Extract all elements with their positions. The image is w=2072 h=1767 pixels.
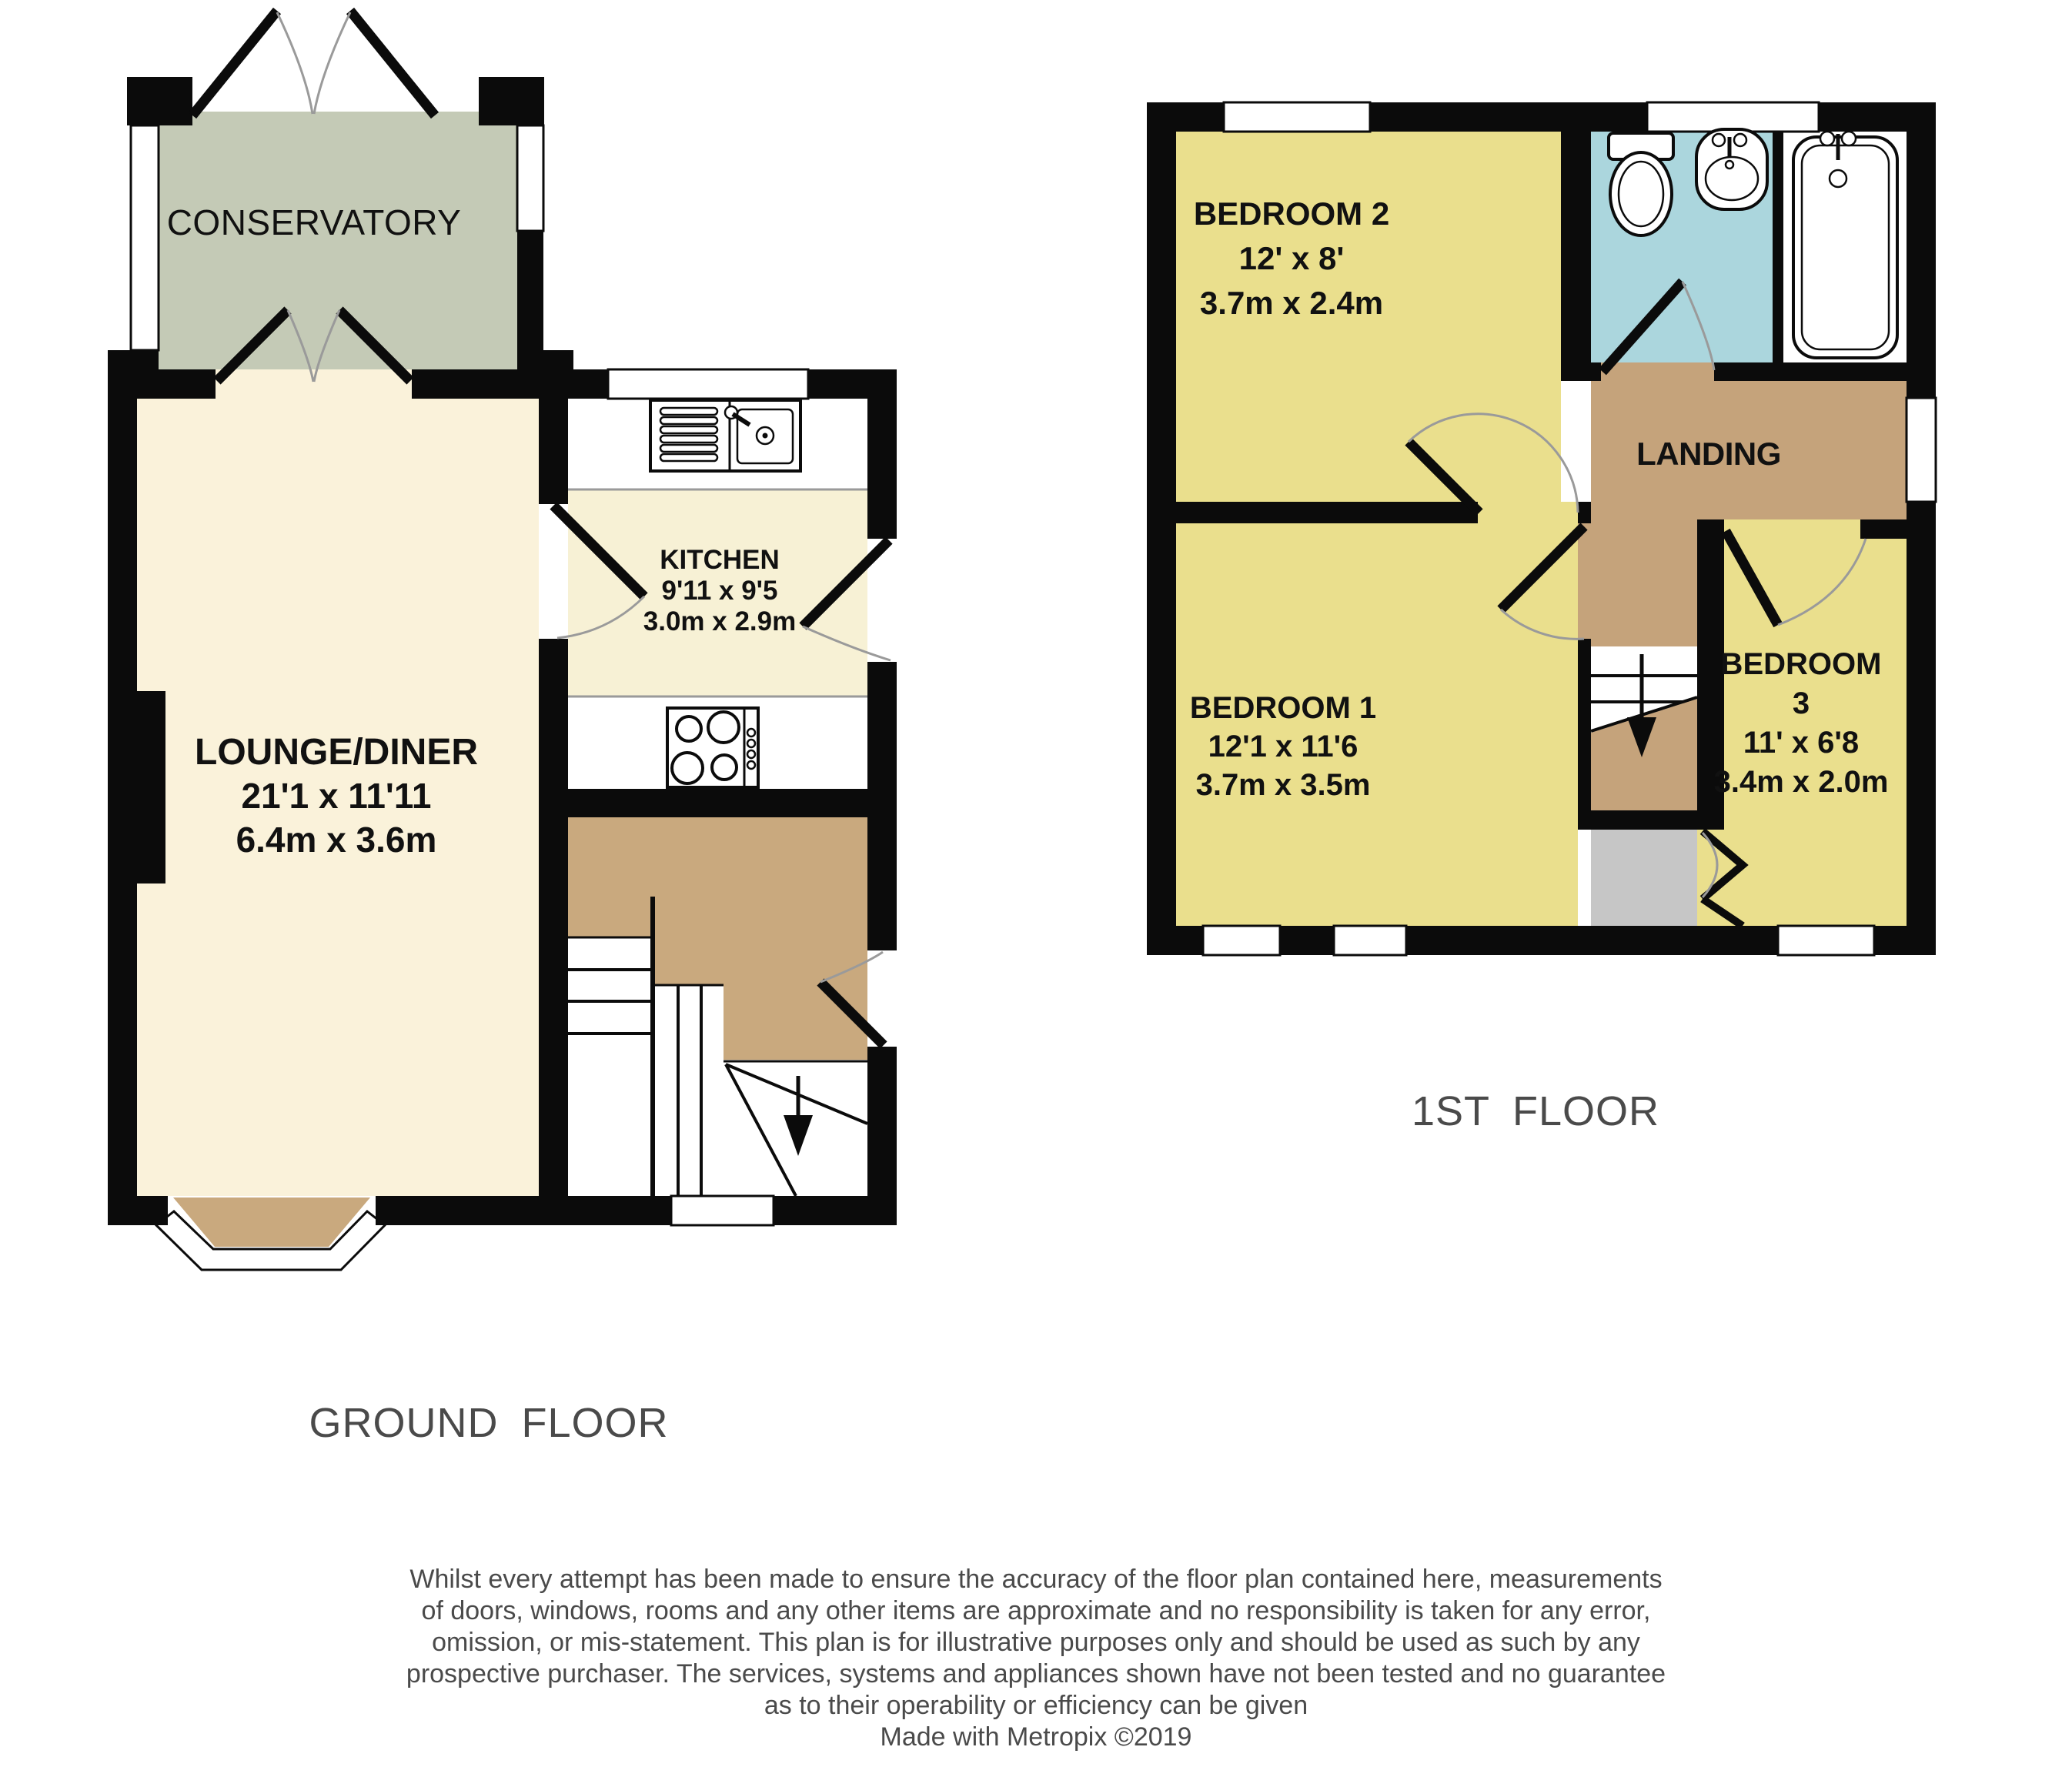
bedroom3-label: BEDROOM 3 11' x 6'8 3.4m x 2.0m xyxy=(1714,645,1889,802)
ground-floor-label: GROUND FLOOR xyxy=(309,1399,668,1447)
hob-knob xyxy=(747,740,755,747)
hob-burner xyxy=(708,712,739,743)
drainer-bar xyxy=(660,454,717,461)
wall-bathroom-landing xyxy=(1714,362,1909,381)
conservatory-door-opening xyxy=(216,369,412,399)
disclaimer-line: prospective purchaser. The services, sys… xyxy=(406,1658,1666,1690)
basin-tap-icon xyxy=(1734,134,1746,146)
wall-landing-bed3 xyxy=(1860,519,1907,539)
floorplan-page: CONSERVATORY LOUNGE/DINER 21'1 x 11'11 6… xyxy=(0,0,2072,1767)
drainer-bar xyxy=(660,426,717,433)
lounge-metric: 6.4m x 3.6m xyxy=(195,818,478,862)
conservatory-label: CONSERVATORY xyxy=(167,202,462,243)
floorplan-drawing xyxy=(0,0,2072,1767)
drainer-bar xyxy=(660,417,717,424)
wall-bottom xyxy=(1874,926,1936,955)
bedroom2-metric: 3.7m x 2.4m xyxy=(1194,281,1389,326)
bathroom-door-opening xyxy=(1601,362,1714,381)
wall-stub xyxy=(1578,502,1591,523)
ground-floor-plan xyxy=(108,11,897,1270)
landing-window xyxy=(1907,398,1936,502)
wall-bed2-bathroom xyxy=(1561,132,1591,381)
hob-burner xyxy=(712,755,737,780)
conservatory-window-right xyxy=(517,125,543,231)
cupboard-floor xyxy=(1591,830,1697,926)
disclaimer-line: omission, or mis-statement. This plan is… xyxy=(406,1627,1666,1658)
bedroom1-metric: 3.7m x 3.5m xyxy=(1190,766,1376,804)
bedroom1-imperial: 12'1 x 11'6 xyxy=(1190,727,1376,766)
basin-tap-icon xyxy=(1713,134,1725,146)
lounge-name: LOUNGE/DINER xyxy=(195,730,478,774)
conservatory-corner xyxy=(127,77,192,125)
bath-drain xyxy=(1830,170,1846,187)
chimney-breast xyxy=(137,691,165,883)
bedroom1-window xyxy=(1334,926,1406,955)
hob-burner xyxy=(672,753,703,783)
first-floor-label: 1ST FLOOR xyxy=(1412,1087,1659,1135)
stairs-flight-middle xyxy=(655,985,724,1196)
bath-tap-icon xyxy=(1842,132,1856,145)
wall-bottom xyxy=(774,1196,897,1225)
wall-bottom xyxy=(1406,926,1778,955)
sink-drain-dot xyxy=(763,433,768,439)
hob-knob xyxy=(747,729,755,737)
door-swing-arc xyxy=(277,12,312,114)
basin-drain xyxy=(1726,161,1733,169)
metropix-credit: Made with Metropix ©2019 xyxy=(406,1722,1666,1753)
hob-burner xyxy=(677,716,701,741)
drainer-bar xyxy=(660,408,717,415)
bathroom-window xyxy=(1647,102,1819,132)
bedroom2-window xyxy=(1224,102,1370,132)
bath-tap-icon xyxy=(1820,132,1834,145)
bedroom3-window xyxy=(1778,926,1874,955)
french-door-leaf xyxy=(350,11,435,115)
conservatory-corner xyxy=(479,77,544,125)
wall-lounge-hall xyxy=(539,639,568,1225)
wall-bottom xyxy=(1280,926,1334,955)
wall-left xyxy=(1147,102,1176,955)
bedroom1-name: BEDROOM 1 xyxy=(1190,689,1376,727)
wall-bathroom-landing xyxy=(1591,362,1601,381)
conservatory-window-left xyxy=(131,125,159,350)
hob-knob xyxy=(747,761,755,769)
conservatory-junction xyxy=(108,350,159,399)
wall-top xyxy=(1370,102,1647,132)
bedroom2-label: BEDROOM 2 12' x 8' 3.7m x 2.4m xyxy=(1194,192,1389,326)
lounge-label: LOUNGE/DINER 21'1 x 11'11 6.4m x 3.6m xyxy=(195,730,478,862)
bath-partition xyxy=(1773,132,1783,362)
bedroom1-label: BEDROOM 1 12'1 x 11'6 3.7m x 3.5m xyxy=(1190,689,1376,804)
landing-label: LANDING xyxy=(1636,436,1781,473)
bedroom1-door-opening xyxy=(1578,523,1591,639)
disclaimer-text: Whilst every attempt has been made to en… xyxy=(406,1564,1666,1753)
bathtub xyxy=(1793,137,1897,358)
bedroom3-name: BEDROOM xyxy=(1714,645,1889,684)
bedroom2-imperial: 12' x 8' xyxy=(1194,236,1389,281)
wall-bottom xyxy=(1147,926,1203,955)
wall-bottom xyxy=(108,1196,168,1225)
kitchen-name: KITCHEN xyxy=(643,545,796,576)
hob-knob xyxy=(747,750,755,758)
kitchen-imperial: 9'11 x 9'5 xyxy=(643,576,796,606)
door-swing-arc xyxy=(314,12,350,114)
stairs-flight-left xyxy=(568,937,650,1196)
kitchen-window xyxy=(608,369,808,399)
bedroom2-door-opening xyxy=(1478,502,1578,523)
lounge-imperial: 21'1 x 11'11 xyxy=(195,774,478,818)
bedroom3-door-opening xyxy=(1724,519,1860,539)
wall-right xyxy=(1907,102,1936,955)
bedroom3-number: 3 xyxy=(1714,684,1889,723)
drainer-bar xyxy=(660,436,717,443)
landing-floor-column xyxy=(1591,519,1697,646)
wall-bottom xyxy=(376,1196,671,1225)
disclaimer-line: as to their operability or efficiency ca… xyxy=(406,1690,1666,1722)
wall-bed1-bed2 xyxy=(1147,502,1478,523)
bedroom3-imperial: 11' x 6'8 xyxy=(1714,723,1889,763)
stair-divider xyxy=(650,897,655,1196)
wall xyxy=(412,369,608,399)
kitchen-metric: 3.0m x 2.9m xyxy=(643,606,796,637)
wall-kitchen-hall xyxy=(539,789,897,817)
wall-right xyxy=(867,369,897,539)
drainer-bar xyxy=(660,445,717,452)
conservatory-wall-right xyxy=(517,231,543,369)
bedroom2-name: BEDROOM 2 xyxy=(1194,192,1389,236)
wall-bed1-landing xyxy=(1578,639,1591,810)
kitchen-label: KITCHEN 9'11 x 9'5 3.0m x 2.9m xyxy=(643,545,796,637)
french-door-leaf xyxy=(192,11,277,115)
wall-left xyxy=(108,369,137,1225)
bedroom1-window xyxy=(1203,926,1280,955)
bedroom3-metric: 3.4m x 2.0m xyxy=(1714,763,1889,802)
disclaimer-line: of doors, windows, rooms and any other i… xyxy=(406,1595,1666,1627)
disclaimer-line: Whilst every attempt has been made to en… xyxy=(406,1564,1666,1595)
hall-window xyxy=(671,1196,774,1225)
